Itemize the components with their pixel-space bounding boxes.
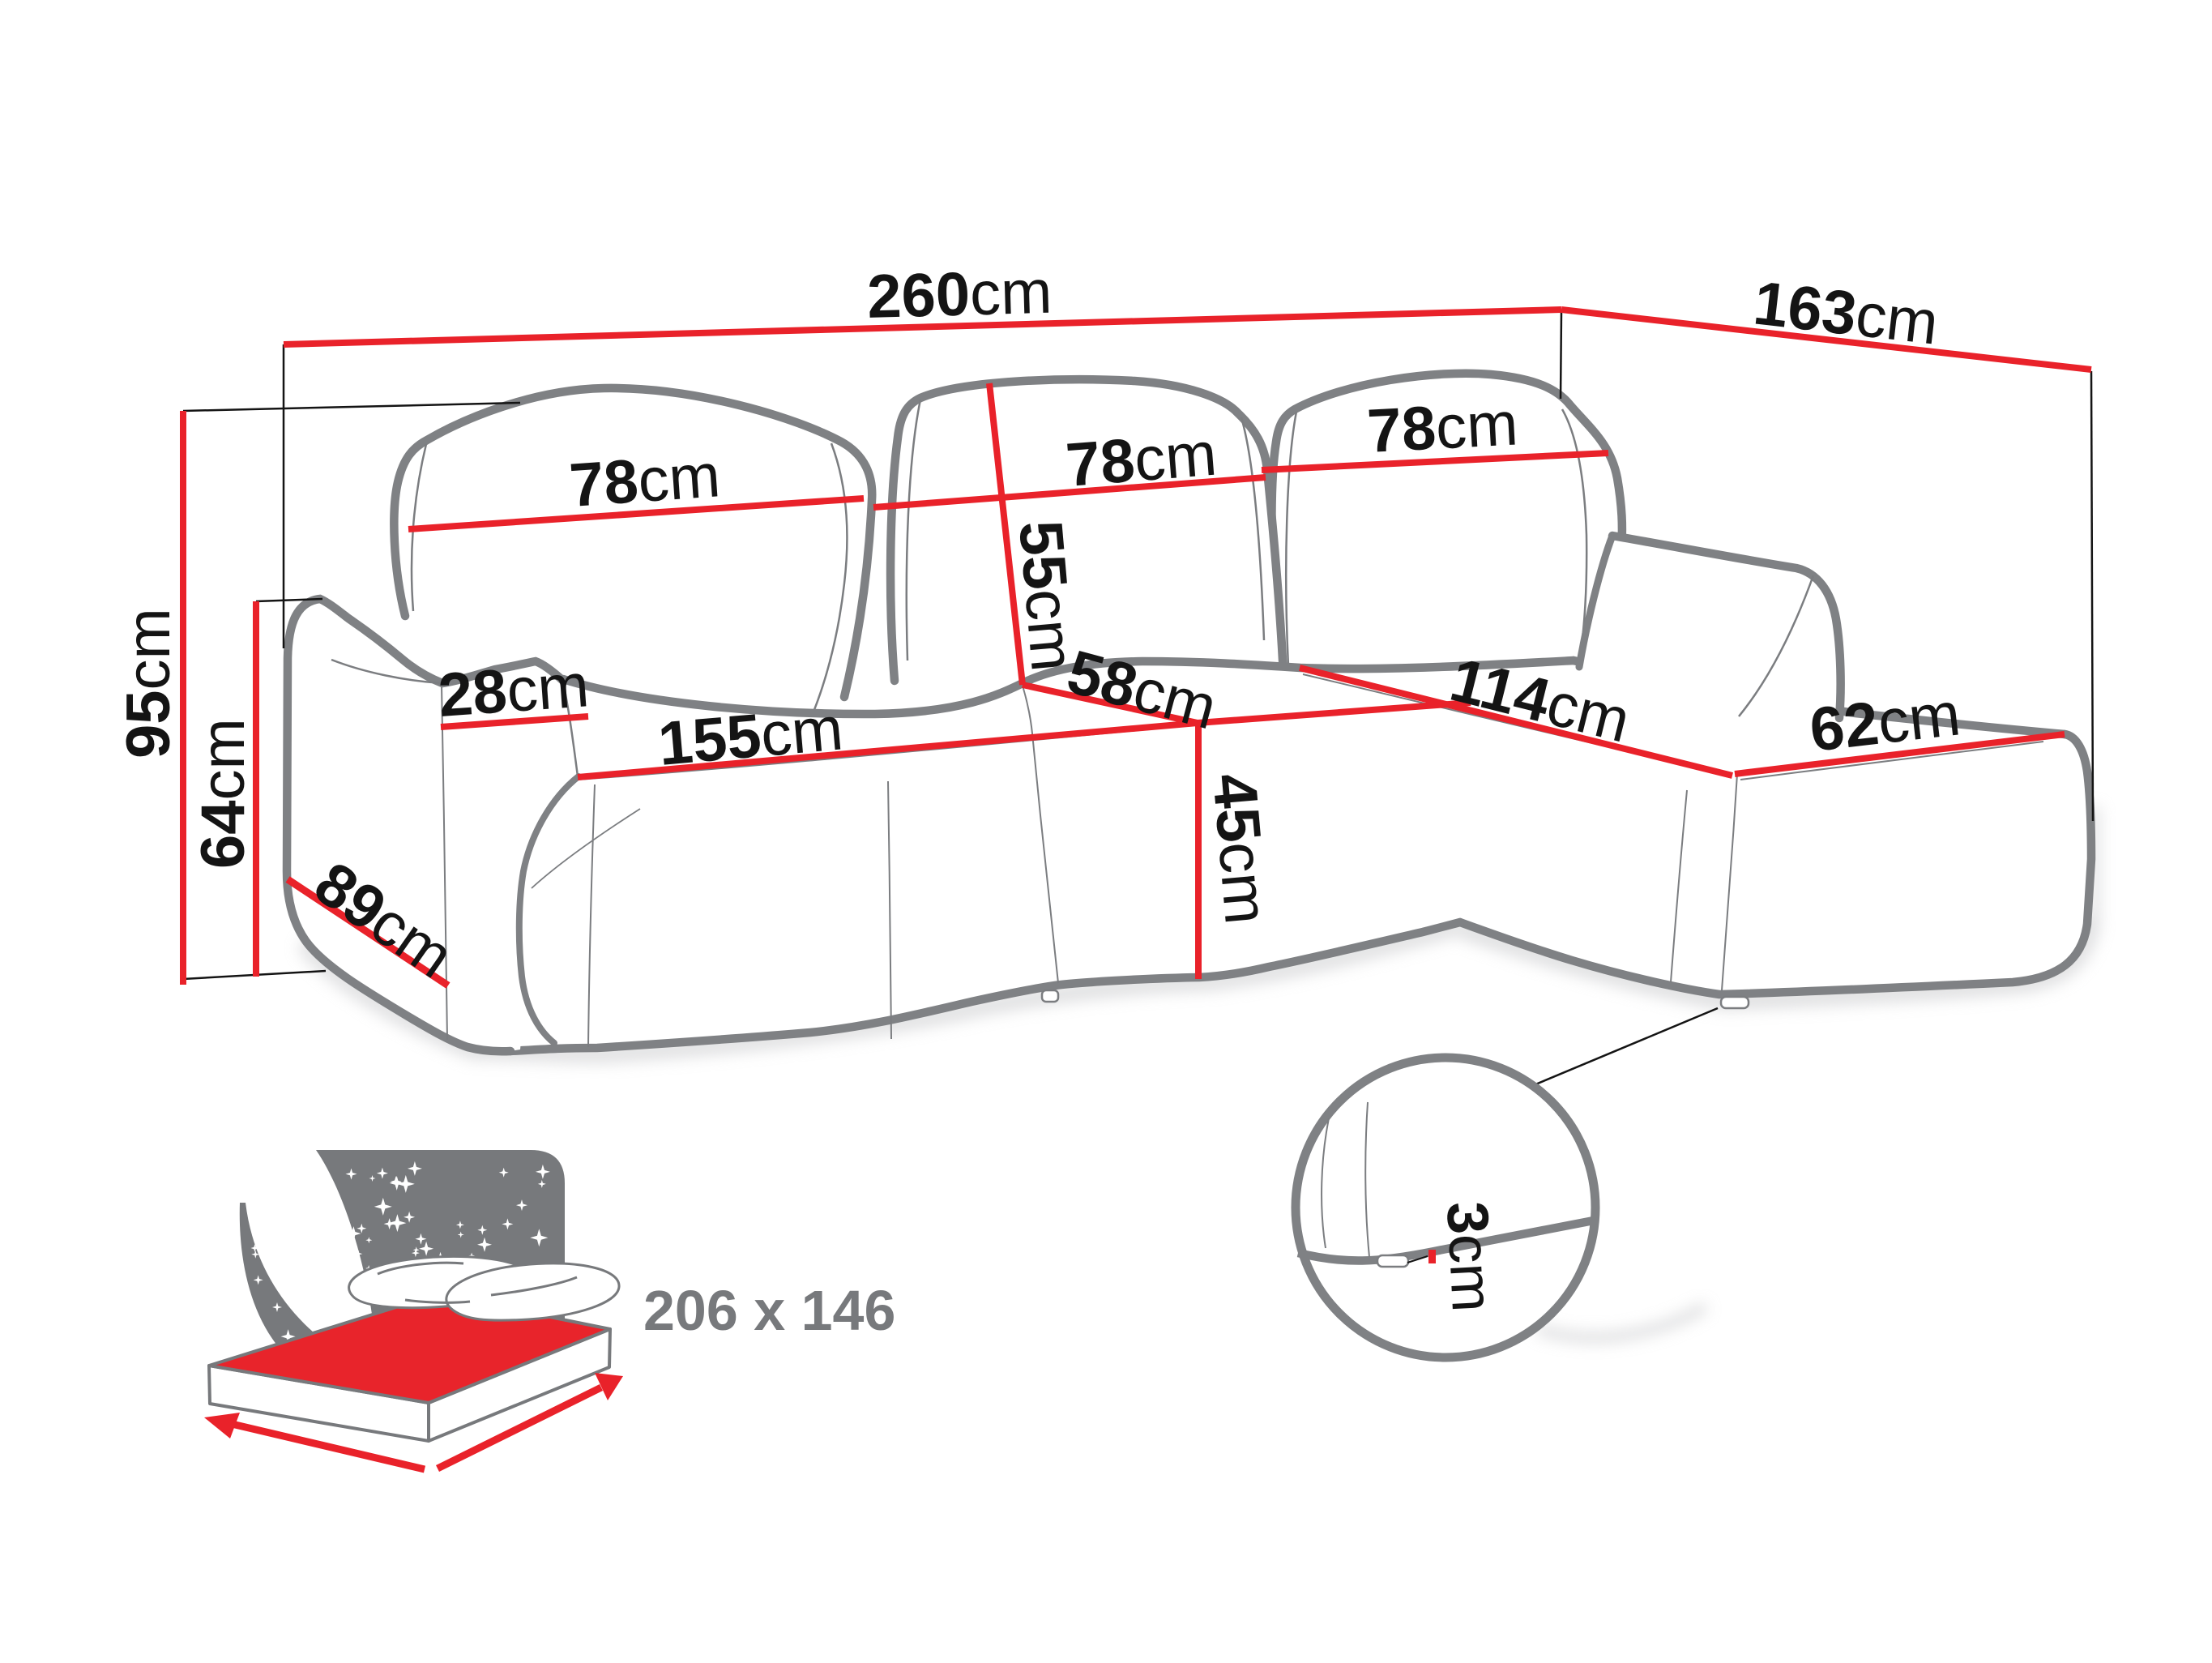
svg-text:260cm: 260cm: [866, 258, 1053, 331]
svg-text:95cm: 95cm: [114, 608, 183, 759]
svg-text:206 x 146: 206 x 146: [643, 1279, 895, 1342]
svg-text:64cm: 64cm: [189, 718, 258, 869]
svg-text:45cm: 45cm: [1199, 771, 1281, 927]
svg-text:78cm: 78cm: [1064, 420, 1219, 500]
svg-text:28cm: 28cm: [436, 651, 591, 730]
svg-text:3cm: 3cm: [1434, 1200, 1505, 1314]
svg-text:78cm: 78cm: [567, 441, 722, 520]
svg-text:78cm: 78cm: [1365, 389, 1519, 466]
